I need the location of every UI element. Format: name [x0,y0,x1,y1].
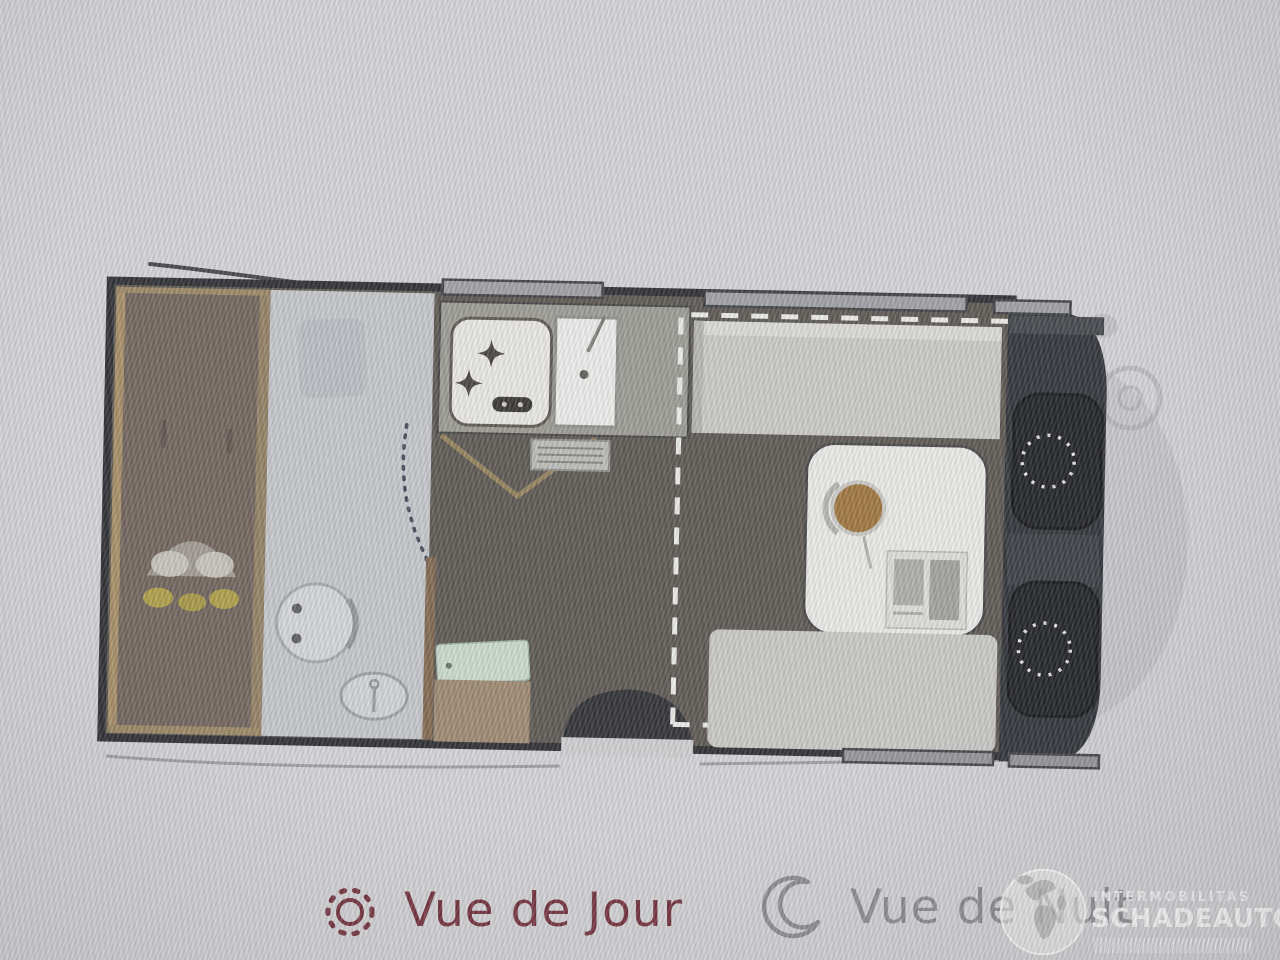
globe-icon [995,866,1091,958]
window-kitchen [443,279,603,297]
stove [450,318,552,427]
window-cab-bottom [1009,753,1099,768]
stove-controls [492,397,532,413]
bathroom-area [261,290,441,739]
window-cab-top [994,300,1070,315]
day-view-toggle[interactable]: Vue de Jour [318,878,683,942]
kitchen-sink [554,317,618,427]
watermark-brand-small: INTERMOBILITAS [1093,890,1251,905]
moon-icon [760,872,830,942]
entry-door-gap [561,737,693,758]
dinette-table [804,443,988,637]
bowl [832,482,885,535]
bottom-bench [707,629,997,753]
map-on-table [886,551,968,630]
cab-area [999,311,1108,763]
day-view-label: Vue de Jour [404,883,683,938]
floorplan-graphic [0,0,1280,960]
driver-seat [1012,393,1103,529]
washbasin [341,672,408,719]
bed-mattress [107,287,268,736]
watermark: INTERMOBILITAS SCHADEAUTOS.NL [995,862,1280,960]
rear-bed-area [107,287,270,736]
window-bench-bottom [843,749,993,765]
cab-floor [1007,533,1100,587]
sun-icon [318,878,382,942]
entry-floor [433,679,530,743]
bed-mark [227,429,232,453]
watermark-brand-large: SCHADEAUTOS.NL [1091,904,1280,934]
passenger-seat [1008,581,1099,717]
cab-dashboard [1010,315,1104,335]
bed-mark [161,420,166,448]
vent-grate [531,439,610,471]
entry-mat [436,640,530,684]
shower-tray [298,318,366,398]
toilet [276,583,357,663]
screen-photo: { "legend": { "day": { "label": "Vue de … [0,0,1280,960]
watermark-hatch-bar [1093,938,1251,953]
